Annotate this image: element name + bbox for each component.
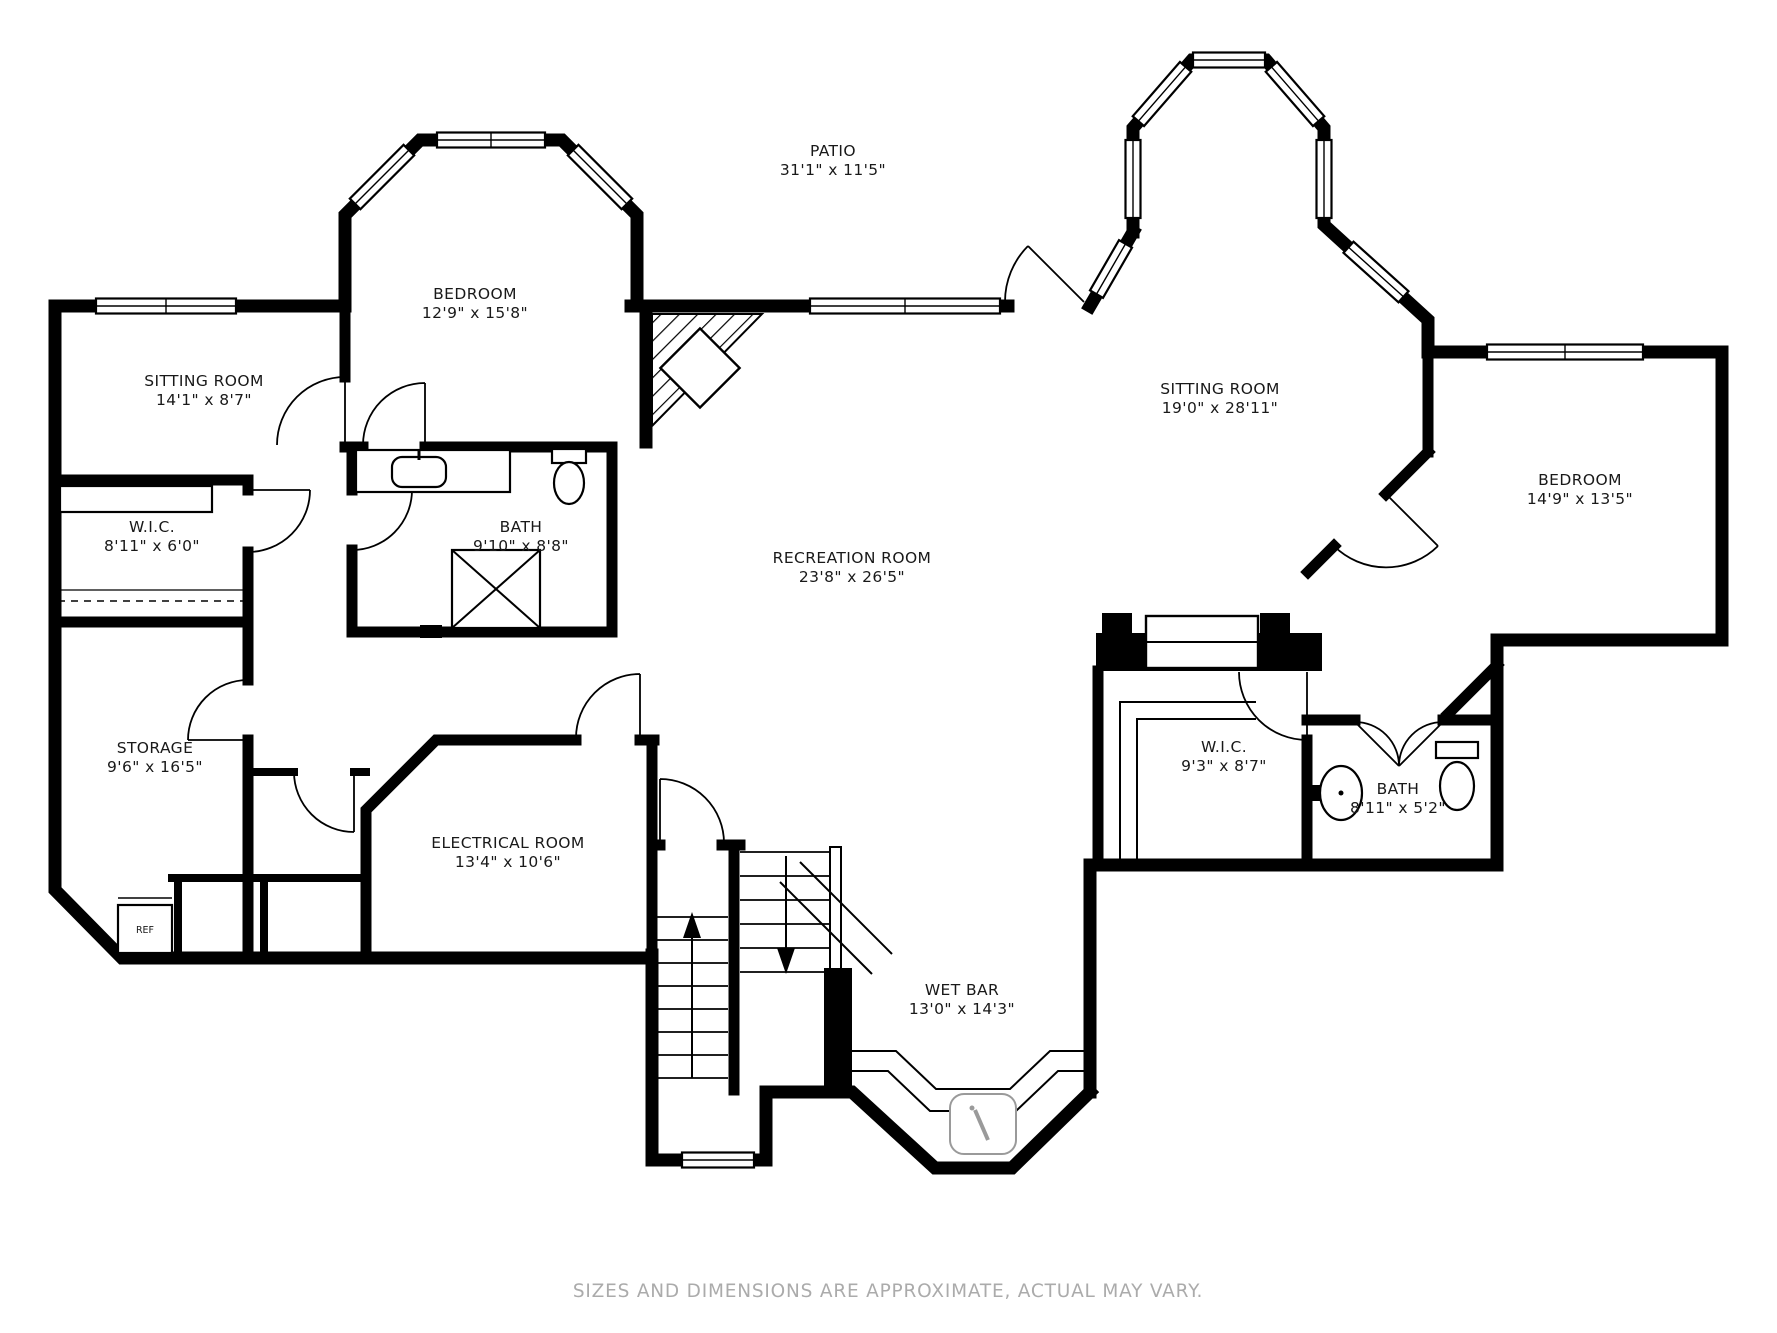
room-dims: 9'10" x 8'8" — [473, 537, 569, 555]
room-name: BEDROOM — [433, 285, 517, 303]
room-dims: 8'11" x 5'2" — [1350, 799, 1446, 817]
bath-fixture — [420, 625, 442, 638]
wic-right-shelves — [1120, 702, 1256, 860]
fireplace-tab — [1102, 613, 1132, 635]
room-dims: 14'9" x 13'5" — [1527, 490, 1633, 508]
room-dims: 31'1" x 11'5" — [780, 161, 886, 179]
room-label-bedroom-right: BEDROOM 14'9" x 13'5" — [1527, 471, 1633, 508]
up-arrow-icon — [683, 912, 701, 1078]
stair-wall-chunk — [824, 968, 852, 1092]
door-arc — [1005, 246, 1084, 302]
fireplace-right — [1096, 613, 1322, 671]
room-name: WET BAR — [925, 981, 999, 999]
room-name: BATH — [500, 518, 543, 536]
door-arc — [352, 490, 412, 550]
toilet-tank — [1436, 742, 1478, 758]
window — [1487, 345, 1643, 360]
room-name: PATIO — [810, 142, 856, 160]
room-dims: 13'0" x 14'3" — [909, 1000, 1015, 1018]
fireplace-hatch — [652, 314, 762, 426]
room-label-electrical-room: ELECTRICAL ROOM 13'4" x 10'6" — [431, 834, 584, 871]
room-label-recreation-room: RECREATION ROOM 23'8" x 26'5" — [773, 549, 932, 586]
floor-plan-canvas: REF PATIO 31'1" x 11'5" — [0, 0, 1777, 1333]
room-name: SITTING ROOM — [1160, 380, 1280, 398]
floor-plan-page: REF PATIO 31'1" x 11'5" — [0, 0, 1777, 1333]
room-label-bath-right: BATH 8'11" x 5'2" — [1350, 780, 1446, 817]
door-arc — [294, 772, 354, 832]
window — [568, 145, 632, 209]
window — [810, 299, 1000, 314]
window — [1317, 140, 1332, 218]
room-name: SITTING ROOM — [144, 372, 264, 390]
sink-icon — [392, 457, 446, 487]
ref-label: REF — [136, 925, 154, 936]
room-dims: 19'0" x 28'11" — [1162, 399, 1278, 417]
room-dims: 8'11" x 6'0" — [104, 537, 200, 555]
room-name: BEDROOM — [1538, 471, 1622, 489]
door-arc — [576, 674, 640, 738]
window — [1133, 62, 1192, 126]
exterior-walls — [55, 60, 1722, 1168]
window — [1343, 242, 1408, 303]
shower-icon — [452, 550, 540, 628]
window — [96, 299, 236, 314]
door-arc — [1239, 672, 1307, 740]
room-name: ELECTRICAL ROOM — [431, 834, 584, 852]
window — [350, 145, 414, 209]
room-dims: 23'8" x 26'5" — [799, 568, 905, 586]
wet-bar-sink — [950, 1094, 1016, 1154]
room-label-sitting-room-left: SITTING ROOM 14'1" x 8'7" — [144, 372, 264, 409]
room-dims: 13'4" x 10'6" — [455, 853, 561, 871]
interior-walls — [55, 306, 1497, 1160]
room-label-bedroom-left: BEDROOM 12'9" x 15'8" — [422, 285, 528, 322]
doors — [188, 246, 1443, 845]
closet-shelf — [60, 486, 212, 512]
windows — [96, 53, 1643, 1168]
room-name: STORAGE — [117, 739, 194, 757]
window — [1193, 53, 1265, 68]
window — [1126, 140, 1141, 218]
window — [437, 133, 545, 148]
down-arrow-icon — [777, 856, 795, 974]
room-label-patio: PATIO 31'1" x 11'5" — [780, 142, 886, 179]
disclaimer-text: SIZES AND DIMENSIONS ARE APPROXIMATE, AC… — [573, 1281, 1203, 1302]
bar-counter — [780, 882, 872, 974]
door-arc — [277, 377, 345, 445]
room-label-bath-left: BATH 9'10" x 8'8" — [473, 518, 569, 555]
room-name: RECREATION ROOM — [773, 549, 932, 567]
room-label-wet-bar: WET BAR 13'0" x 14'3" — [909, 981, 1015, 1018]
window — [1266, 62, 1325, 126]
room-name: W.I.C. — [129, 518, 175, 536]
bar-counter — [800, 862, 892, 954]
door-arc-bifold — [1355, 722, 1443, 766]
room-name: BATH — [1377, 780, 1420, 798]
room-dims: 9'3" x 8'7" — [1181, 757, 1267, 775]
door-arc — [248, 490, 310, 552]
room-dims: 12'9" x 15'8" — [422, 304, 528, 322]
door-arc — [660, 779, 724, 845]
door-arc — [363, 383, 425, 445]
room-label-wic-right: W.I.C. 9'3" x 8'7" — [1181, 738, 1267, 775]
storage-details: REF — [118, 898, 172, 953]
window — [682, 1153, 754, 1168]
room-label-sitting-room-right: SITTING ROOM 19'0" x 28'11" — [1160, 380, 1280, 417]
room-labels: PATIO 31'1" x 11'5" BEDROOM 12'9" x 15'8… — [104, 142, 1633, 1018]
door-arc — [1334, 494, 1438, 567]
room-dims: 14'1" x 8'7" — [156, 391, 252, 409]
room-label-storage: STORAGE 9'6" x 16'5" — [107, 739, 203, 776]
toilet-icon — [554, 462, 584, 504]
window — [1090, 240, 1132, 298]
room-label-wic-left: W.I.C. 8'11" x 6'0" — [104, 518, 200, 555]
sink-pedestal — [1309, 785, 1321, 801]
sink-drain — [1339, 791, 1344, 796]
room-dims: 9'6" x 16'5" — [107, 758, 203, 776]
fireplace-tab — [1260, 613, 1290, 635]
room-name: W.I.C. — [1201, 738, 1247, 756]
door-arc — [188, 680, 248, 740]
